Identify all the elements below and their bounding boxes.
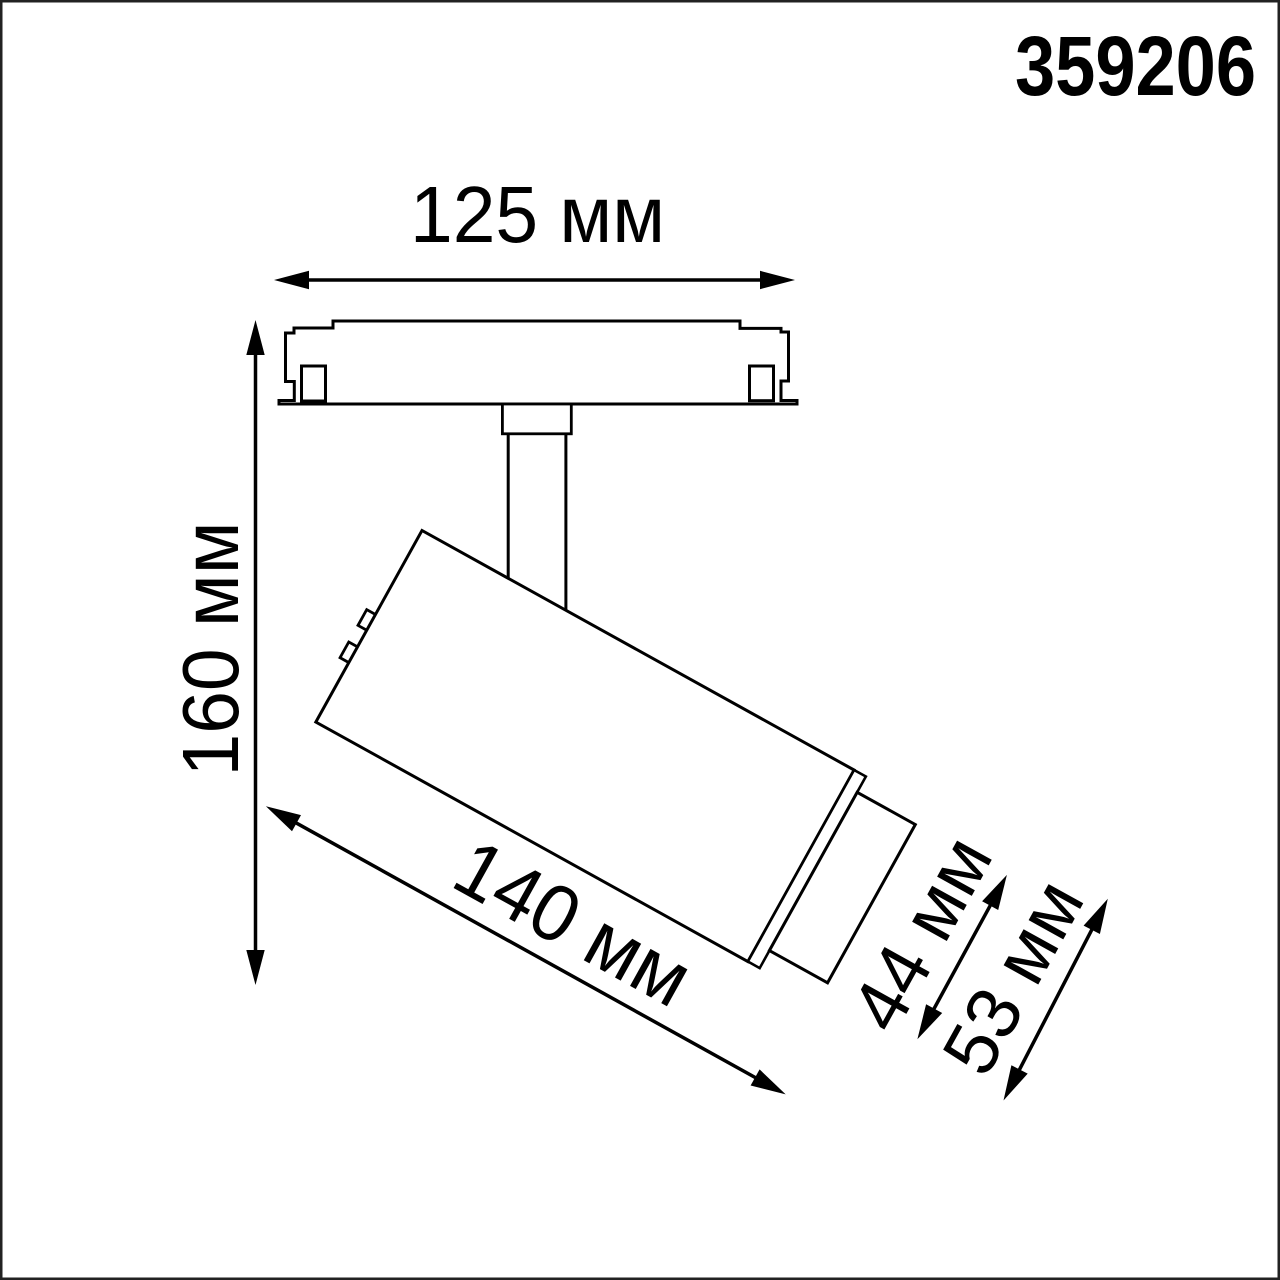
svg-text:359206: 359206 xyxy=(1015,19,1256,113)
svg-text:160 мм: 160 мм xyxy=(166,521,256,776)
svg-text:125 мм: 125 мм xyxy=(410,170,665,260)
